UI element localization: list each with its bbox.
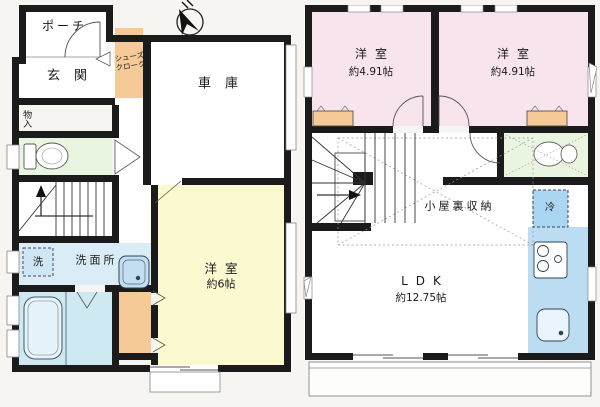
garage-label: 車庫 [184,78,252,93]
closet-right [527,111,567,126]
compass-needle [179,9,199,35]
garage-door [286,45,296,150]
attic-storage-label: 小屋裏収納 [422,201,495,214]
stove-icon [534,242,567,278]
refrigerator-label: 冷 [545,202,555,214]
sink-icon-2f [537,309,569,341]
sink-icon-1f [119,256,149,288]
compass-north-mark [182,0,193,8]
entrance-step [150,372,220,392]
compass [168,0,212,44]
room-garage [151,42,284,178]
toilet-icon-2f [534,142,577,166]
washroom-label: 洗面所 [73,255,118,268]
floor1-plan [5,5,297,397]
western-right-size: 約4.91帖 [491,66,535,78]
closet-left [313,111,353,126]
western-room-6-label: 洋室 [196,262,245,276]
toilet-icon-1f [24,143,68,169]
western-right-label: 洋室 [489,48,537,62]
porch-label: ポーチ [39,20,87,34]
balcony [309,362,591,396]
floor-plan-page: { "title": "住宅間取り図(1階・2階)", "compass": {… [0,0,600,407]
closet-1f [119,292,151,353]
storage-label: 物入 [21,110,31,128]
entrance-label: 玄関 [33,70,101,85]
washer-label: 洗 [33,256,44,268]
ldk-size: 約12.75帖 [395,292,446,304]
western-left-size: 約4.91帖 [349,66,393,78]
stairs-area-1f [19,182,112,236]
western-room-6-size: 約6帖 [207,279,236,292]
western-left-label: 洋室 [347,48,395,62]
ldk-label: LDK [393,275,449,289]
